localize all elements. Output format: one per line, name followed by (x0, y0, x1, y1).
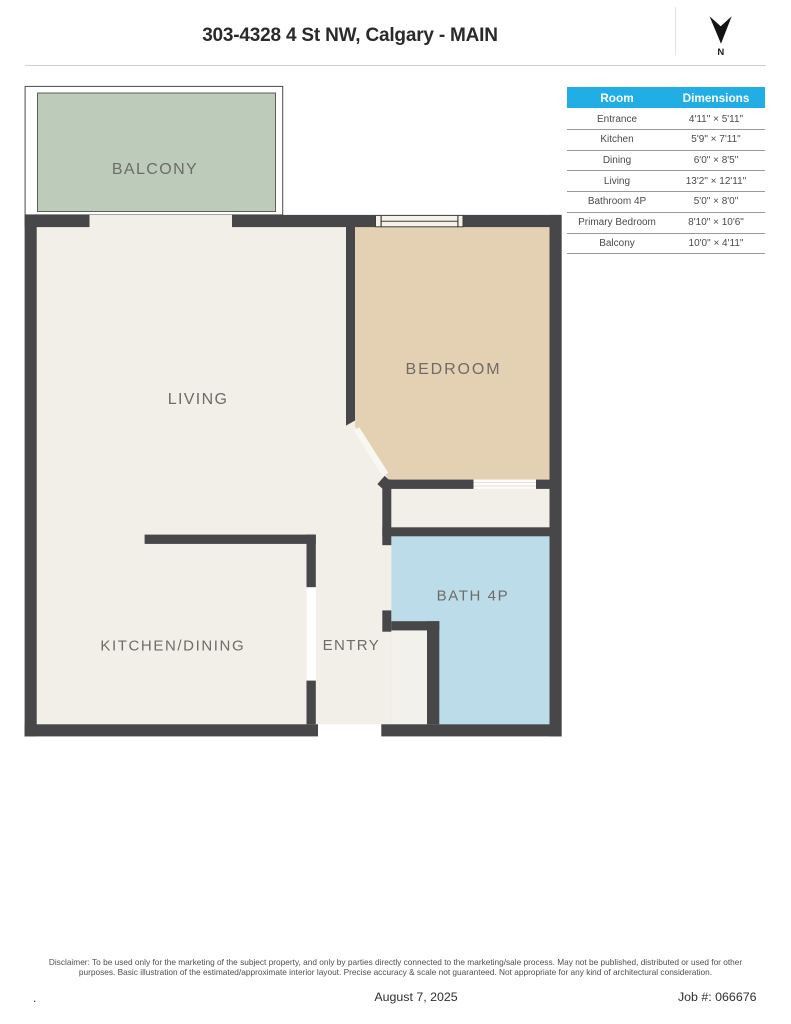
svg-text:BEDROOM: BEDROOM (406, 361, 502, 378)
svg-text:BATH 4P: BATH 4P (437, 588, 510, 605)
svg-text:KITCHEN/DINING: KITCHEN/DINING (100, 638, 245, 655)
svg-text:ENTRY: ENTRY (323, 637, 381, 654)
svg-text:BALCONY: BALCONY (112, 161, 198, 178)
svg-text:N: N (717, 47, 724, 58)
svg-text:LIVING: LIVING (168, 391, 229, 408)
